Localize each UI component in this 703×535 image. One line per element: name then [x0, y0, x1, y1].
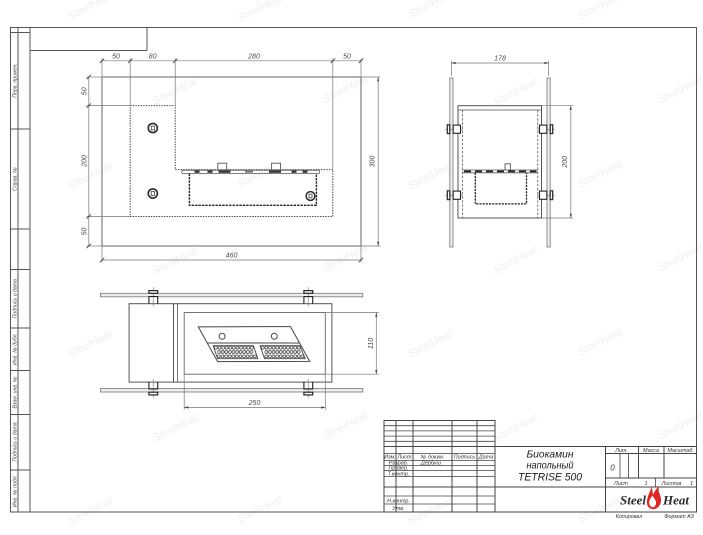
svg-text:SteelHeat: SteelHeat: [406, 0, 455, 21]
svg-text:SteelHeat: SteelHeat: [656, 410, 703, 443]
svg-text:Дербуш: Дербуш: [420, 461, 441, 467]
svg-text:Перв. примен.: Перв. примен.: [13, 63, 19, 97]
svg-text:Инв. № подл.: Инв. № подл.: [13, 475, 19, 507]
svg-text:Steel: Steel: [620, 493, 646, 508]
svg-text:SteelHeat: SteelHeat: [66, 328, 115, 361]
svg-text:Биокамин: Биокамин: [527, 450, 574, 461]
svg-text:Взам. инв. №: Взам. инв. №: [13, 376, 19, 408]
svg-text:SteelHeat: SteelHeat: [576, 326, 625, 359]
svg-text:Подпись и дата: Подпись и дата: [13, 422, 19, 461]
svg-text:50: 50: [81, 228, 88, 236]
svg-text:178: 178: [494, 55, 506, 62]
svg-text:80: 80: [149, 53, 157, 60]
svg-text:200: 200: [562, 156, 569, 169]
svg-text:SteelHeat: SteelHeat: [491, 76, 540, 109]
svg-text:50: 50: [343, 53, 351, 60]
svg-text:SteelHeat: SteelHeat: [491, 244, 540, 277]
svg-text:Масса: Масса: [643, 448, 659, 454]
svg-text:SteelHeat: SteelHeat: [576, 493, 625, 526]
svg-text:SteelHeat: SteelHeat: [491, 412, 540, 445]
svg-text:Лист: Лист: [613, 481, 628, 487]
svg-text:SteelHeat: SteelHeat: [576, 158, 625, 191]
svg-text:напольный: напольный: [527, 461, 574, 472]
svg-text:SteelHeat: SteelHeat: [66, 495, 115, 528]
svg-text:Формат А3: Формат А3: [664, 514, 694, 520]
svg-text:SteelHeat: SteelHeat: [406, 160, 455, 193]
svg-text:Справ. №: Справ. №: [13, 167, 19, 191]
svg-text:SteelHeat: SteelHeat: [151, 245, 200, 278]
svg-text:SteelHeat: SteelHeat: [321, 410, 370, 443]
svg-text:Инв. № дубл.: Инв. № дубл.: [13, 333, 19, 365]
svg-text:Лит.: Лит.: [614, 448, 628, 454]
svg-text:Heat: Heat: [662, 493, 689, 508]
svg-text:250: 250: [248, 400, 261, 407]
svg-text:Дата: Дата: [478, 455, 493, 461]
svg-text:50: 50: [112, 53, 120, 60]
svg-text:Листов: Листов: [661, 481, 682, 487]
svg-text:Н.контр.: Н.контр.: [387, 499, 410, 505]
svg-text:280: 280: [247, 53, 260, 60]
svg-text:SteelHeat: SteelHeat: [151, 75, 200, 108]
svg-text:460: 460: [226, 253, 238, 260]
svg-text:SteelHeat: SteelHeat: [406, 328, 455, 361]
svg-text:SteelHeat: SteelHeat: [656, 242, 703, 275]
svg-text:Подпись: Подпись: [454, 455, 476, 461]
svg-text:Утв.: Утв.: [391, 506, 404, 512]
svg-text:SteelHeat: SteelHeat: [576, 0, 625, 23]
svg-text:SteelHeat: SteelHeat: [236, 0, 285, 25]
svg-text:200: 200: [81, 155, 88, 168]
svg-text:SteelHeat: SteelHeat: [151, 412, 200, 445]
svg-text:1: 1: [645, 481, 648, 487]
svg-text:Копировал: Копировал: [616, 514, 643, 520]
svg-text:0: 0: [610, 464, 615, 473]
svg-text:Масштаб: Масштаб: [667, 448, 693, 454]
svg-text:1: 1: [690, 481, 693, 487]
svg-text:SteelHeat: SteelHeat: [66, 0, 115, 23]
svg-text:50: 50: [81, 87, 88, 95]
svg-text:110: 110: [368, 338, 375, 349]
svg-text:SteelHeat: SteelHeat: [656, 74, 703, 107]
svg-text:Подпись и дата: Подпись и дата: [13, 279, 19, 318]
svg-text:TETRISE 500: TETRISE 500: [518, 472, 583, 484]
svg-text:Т.контр.: Т.контр.: [388, 472, 410, 478]
svg-text:SteelHeat: SteelHeat: [66, 160, 115, 193]
svg-text:SteelHeat: SteelHeat: [236, 158, 285, 191]
svg-text:SteelHeat: SteelHeat: [321, 73, 370, 106]
svg-text:SteelHeat: SteelHeat: [236, 493, 285, 526]
svg-text:300: 300: [370, 156, 377, 168]
